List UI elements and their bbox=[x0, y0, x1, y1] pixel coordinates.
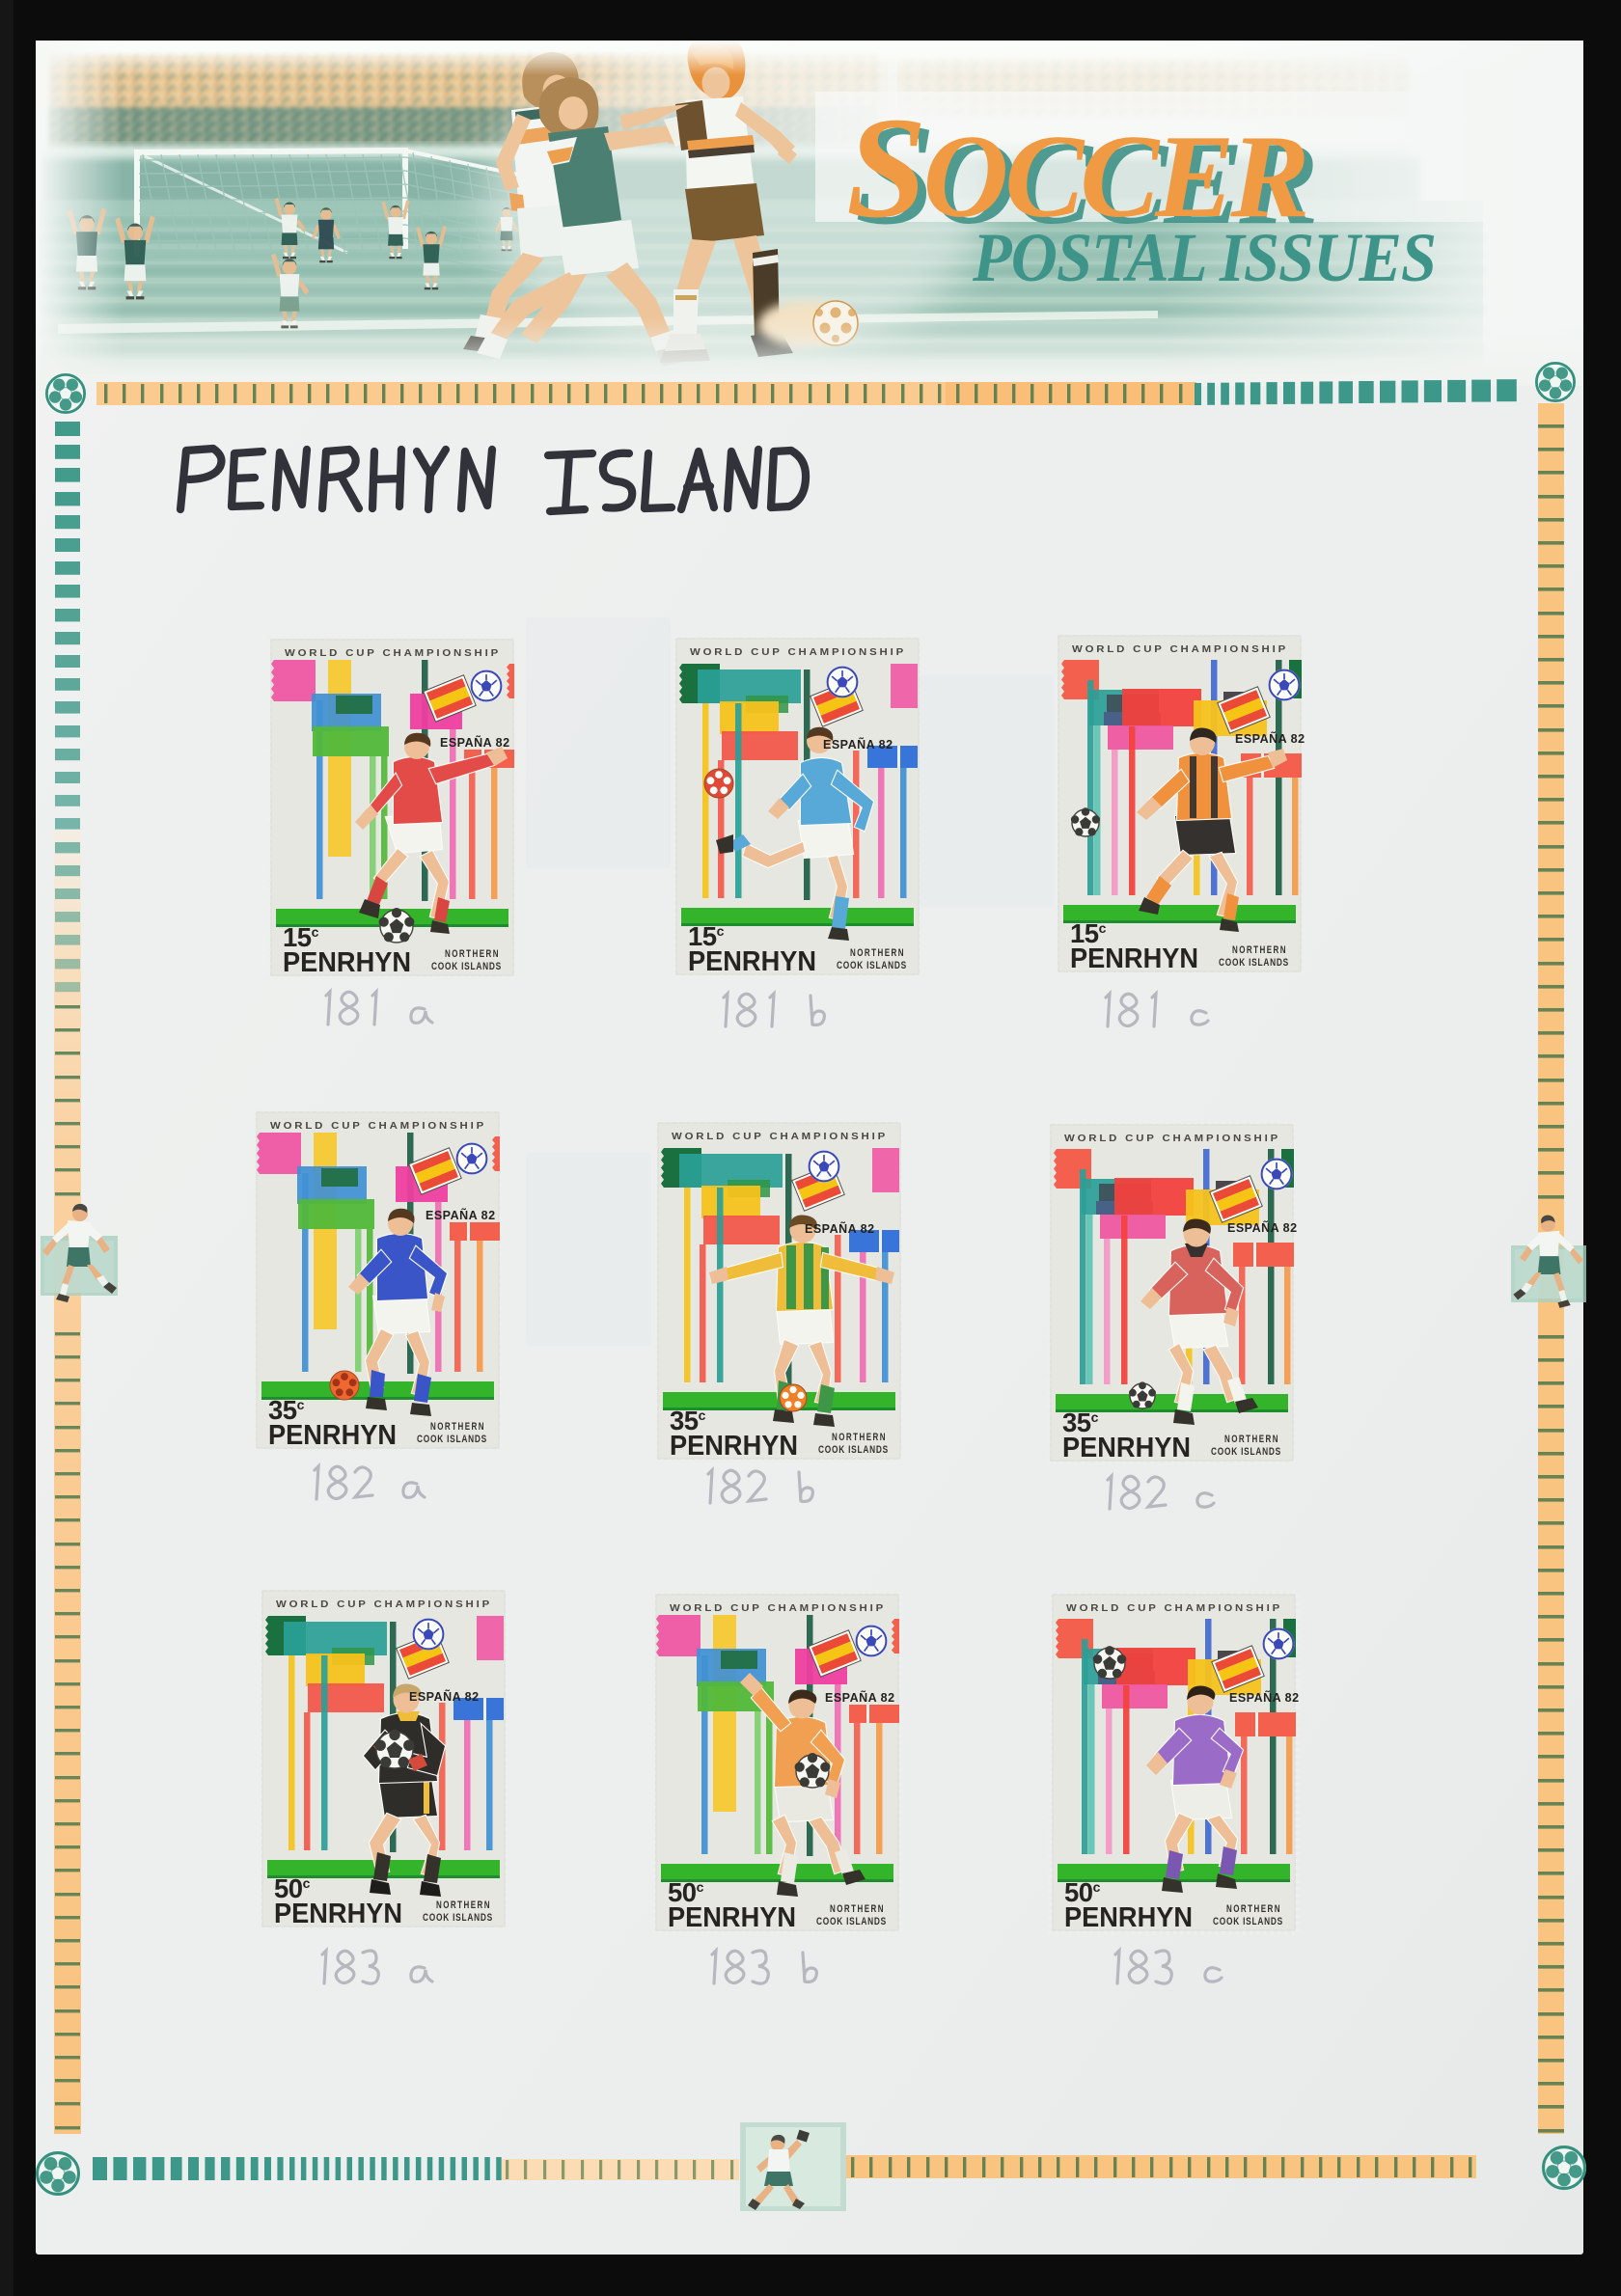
svg-text:PENRHYN: PENRHYN bbox=[274, 1899, 402, 1929]
svg-text:PENRHYN: PENRHYN bbox=[688, 946, 816, 977]
svg-text:ESPAÑA 82: ESPAÑA 82 bbox=[1229, 1690, 1300, 1705]
svg-text:COOK ISLANDS: COOK ISLANDS bbox=[1213, 1916, 1283, 1927]
svg-text:WORLD CUP CHAMPIONSHIP: WORLD CUP CHAMPIONSHIP bbox=[1066, 1602, 1282, 1614]
svg-text:ESPAÑA 82: ESPAÑA 82 bbox=[440, 735, 510, 750]
svg-text:NORTHERN: NORTHERN bbox=[832, 1432, 887, 1443]
svg-text:PENRHYN: PENRHYN bbox=[1064, 1902, 1193, 1933]
svg-text:WORLD CUP CHAMPIONSHIP: WORLD CUP CHAMPIONSHIP bbox=[270, 1120, 486, 1132]
svg-text:ESPAÑA 82: ESPAÑA 82 bbox=[1235, 731, 1305, 746]
svg-text:NORTHERN: NORTHERN bbox=[430, 1421, 485, 1433]
svg-text:NORTHERN: NORTHERN bbox=[1232, 944, 1287, 956]
svg-text:COOK ISLANDS: COOK ISLANDS bbox=[417, 1434, 487, 1445]
svg-text:PENRHYN: PENRHYN bbox=[670, 1431, 798, 1462]
svg-text:PENRHYN: PENRHYN bbox=[668, 1902, 796, 1933]
svg-text:ESPAÑA 82: ESPAÑA 82 bbox=[426, 1208, 496, 1222]
svg-text:ESPAÑA 82: ESPAÑA 82 bbox=[1227, 1220, 1298, 1235]
svg-text:ESPAÑA 82: ESPAÑA 82 bbox=[825, 1690, 895, 1705]
svg-text:ESPAÑA 82: ESPAÑA 82 bbox=[805, 1221, 875, 1236]
svg-text:NORTHERN: NORTHERN bbox=[436, 1900, 491, 1911]
svg-text:WORLD CUP CHAMPIONSHIP: WORLD CUP CHAMPIONSHIP bbox=[276, 1599, 492, 1610]
svg-text:PENRHYN: PENRHYN bbox=[283, 947, 411, 978]
svg-text:PENRHYN: PENRHYN bbox=[1062, 1433, 1191, 1463]
svg-text:WORLD CUP CHAMPIONSHIP: WORLD CUP CHAMPIONSHIP bbox=[285, 647, 501, 659]
svg-text:WORLD CUP CHAMPIONSHIP: WORLD CUP CHAMPIONSHIP bbox=[690, 646, 906, 658]
svg-text:ESPAÑA 82: ESPAÑA 82 bbox=[823, 737, 893, 752]
svg-text:PENRHYN: PENRHYN bbox=[268, 1420, 397, 1451]
svg-text:WORLD CUP CHAMPIONSHIP: WORLD CUP CHAMPIONSHIP bbox=[672, 1131, 888, 1142]
svg-text:NORTHERN: NORTHERN bbox=[1226, 1903, 1281, 1915]
svg-text:COOK ISLANDS: COOK ISLANDS bbox=[423, 1912, 493, 1924]
svg-text:COOK ISLANDS: COOK ISLANDS bbox=[1219, 957, 1289, 969]
svg-text:COOK ISLANDS: COOK ISLANDS bbox=[431, 961, 502, 972]
svg-text:COOK ISLANDS: COOK ISLANDS bbox=[816, 1916, 887, 1927]
svg-text:COOK ISLANDS: COOK ISLANDS bbox=[837, 960, 907, 971]
svg-text:NORTHERN: NORTHERN bbox=[830, 1903, 885, 1915]
svg-text:POSTAL ISSUES: POSTAL ISSUES bbox=[972, 219, 1436, 296]
svg-text:PENRHYN: PENRHYN bbox=[1070, 943, 1198, 974]
svg-text:NORTHERN: NORTHERN bbox=[445, 948, 500, 960]
svg-text:COOK ISLANDS: COOK ISLANDS bbox=[818, 1444, 889, 1456]
svg-text:ESPAÑA 82: ESPAÑA 82 bbox=[409, 1689, 480, 1704]
svg-text:NORTHERN: NORTHERN bbox=[850, 947, 905, 959]
svg-text:WORLD CUP CHAMPIONSHIP: WORLD CUP CHAMPIONSHIP bbox=[670, 1602, 886, 1614]
svg-text:NORTHERN: NORTHERN bbox=[1224, 1434, 1279, 1445]
svg-text:WORLD CUP CHAMPIONSHIP: WORLD CUP CHAMPIONSHIP bbox=[1064, 1133, 1280, 1144]
svg-text:COOK ISLANDS: COOK ISLANDS bbox=[1211, 1446, 1281, 1458]
svg-text:WORLD CUP CHAMPIONSHIP: WORLD CUP CHAMPIONSHIP bbox=[1072, 643, 1288, 655]
